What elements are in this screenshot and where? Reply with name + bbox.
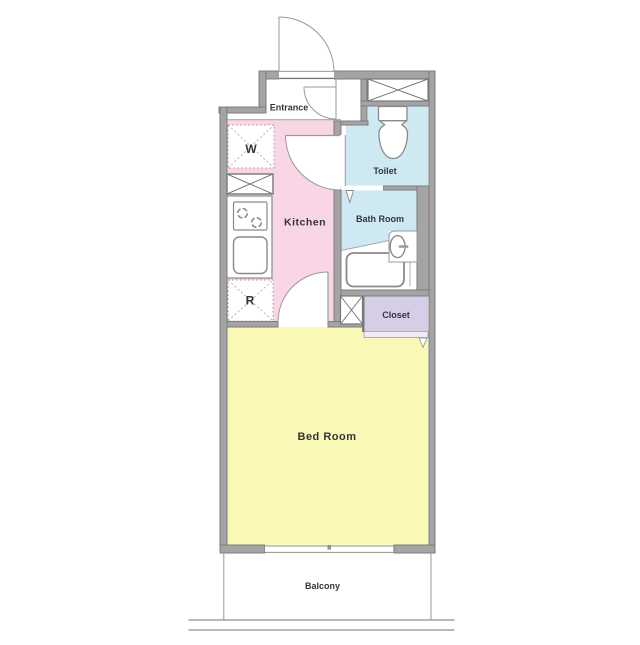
svg-text:Bed Room: Bed Room	[298, 431, 357, 443]
svg-text:Closet: Closet	[382, 310, 410, 320]
svg-text:W: W	[245, 142, 257, 156]
svg-text:Kitchen: Kitchen	[284, 217, 326, 229]
svg-text:Bath Room: Bath Room	[356, 214, 404, 224]
svg-text:Balcony: Balcony	[305, 581, 340, 591]
svg-text:Toilet: Toilet	[373, 166, 396, 176]
svg-text:Entrance: Entrance	[270, 103, 309, 113]
svg-text:R: R	[246, 294, 255, 308]
